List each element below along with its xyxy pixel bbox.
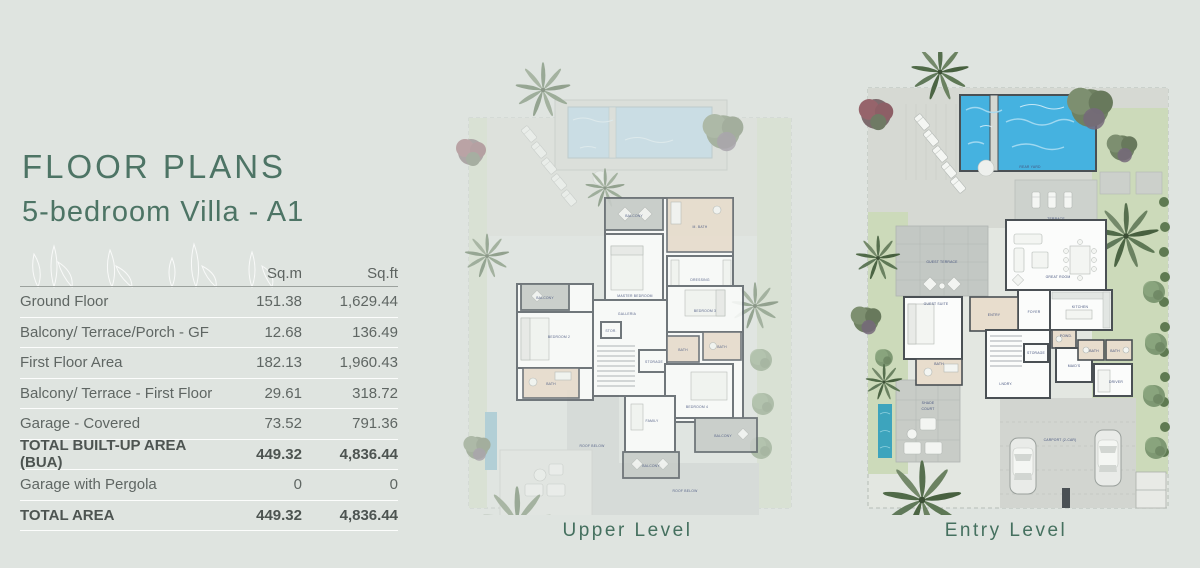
room-label: DRIVER [1109, 380, 1123, 384]
room-label: BATH [934, 362, 944, 366]
page-subtitle: 5-bedroom Villa - A1 [22, 196, 304, 229]
roof-label: ROOF BELOW [580, 444, 606, 448]
entry-level-caption: Entry Level [840, 520, 1172, 542]
table-row-total-area: TOTAL AREA 449.32 4,836.44 [20, 501, 398, 532]
room-label: GUEST SUITE [924, 302, 949, 306]
room-label: BEDROOM 2 [548, 335, 570, 339]
room-label: STORAGE [645, 360, 663, 364]
table-row-total-bua: TOTAL BUILT-UP AREA (BUA) 449.32 4,836.4… [20, 440, 398, 471]
court-label: SHADE [922, 401, 935, 405]
room-label: DRESSING [690, 278, 709, 282]
room-label: BALCONY [536, 296, 554, 300]
table-header: Sq.m Sq.ft [20, 252, 398, 287]
room-label: BALCONY [714, 434, 732, 438]
page-title: FLOOR PLANS [22, 148, 286, 186]
room-label: KITCHEN [1072, 305, 1089, 309]
room-label: BALCONY [625, 214, 643, 218]
room-label: M. BATH [693, 225, 708, 229]
room-label: STOR. [605, 329, 616, 333]
room-label: BATH [1089, 349, 1099, 353]
roof-label: ROOF BELOW [673, 489, 699, 493]
upper-level-caption: Upper Level [455, 520, 800, 542]
room-label: GREAT ROOM [1046, 275, 1071, 279]
room-label: FOYER [1028, 310, 1041, 314]
court-label: COURT [922, 407, 935, 411]
brochure-page: FLOOR PLANS 5-bedroom Villa - A1 Sq.m Sq… [0, 0, 1200, 568]
room-label: LNDRY. [999, 382, 1012, 386]
room-label: MASTER BEDROOM [617, 294, 652, 298]
room-label: BATH [1110, 349, 1120, 353]
room-label: BALCONY [642, 464, 660, 468]
guest-terrace-label: GUEST TERRACE [926, 260, 958, 264]
room-label: FAMILY [645, 419, 659, 423]
table-row: Balcony/ Terrace/Porch - GF 12.68 136.49 [20, 318, 398, 349]
room-label: POWD. [1060, 334, 1073, 338]
upper-level-plan: BALCONY M. BATH MASTER BEDROOM DRESSING … [455, 60, 800, 515]
col-sqm: Sq.m [222, 265, 302, 282]
table-row: Balcony/ Terrace - First Floor 29.61 318… [20, 379, 398, 410]
room-label: MAID'S [1068, 364, 1081, 368]
carport-label: CARPORT (2-CAR) [1044, 438, 1077, 442]
room-label: BATH [717, 345, 727, 349]
table-row: Garage - Covered 73.52 791.36 [20, 409, 398, 440]
table-row: Garage with Pergola 0 0 [20, 470, 398, 501]
table-row: First Floor Area 182.13 1,960.43 [20, 348, 398, 379]
room-label: BATH [546, 382, 556, 386]
room-label: BEDROOM 4 [686, 405, 708, 409]
area-table: Sq.m Sq.ft Ground Floor 151.38 1,629.44 … [20, 252, 398, 531]
room-label: BATH [678, 348, 688, 352]
table-row: Ground Floor 151.38 1,629.44 [20, 287, 398, 318]
room-label: BEDROOM 3 [694, 309, 716, 313]
col-sqft: Sq.ft [302, 265, 398, 282]
yard-label: REAR YARD [1019, 165, 1041, 169]
room-label: ENTRY [988, 313, 1001, 317]
room-label: STORAGE [1027, 351, 1045, 355]
entry-level-plan: REAR YARD TERRACE GUEST TERRACE [840, 52, 1172, 515]
room-label: GALLERIA [618, 312, 637, 316]
